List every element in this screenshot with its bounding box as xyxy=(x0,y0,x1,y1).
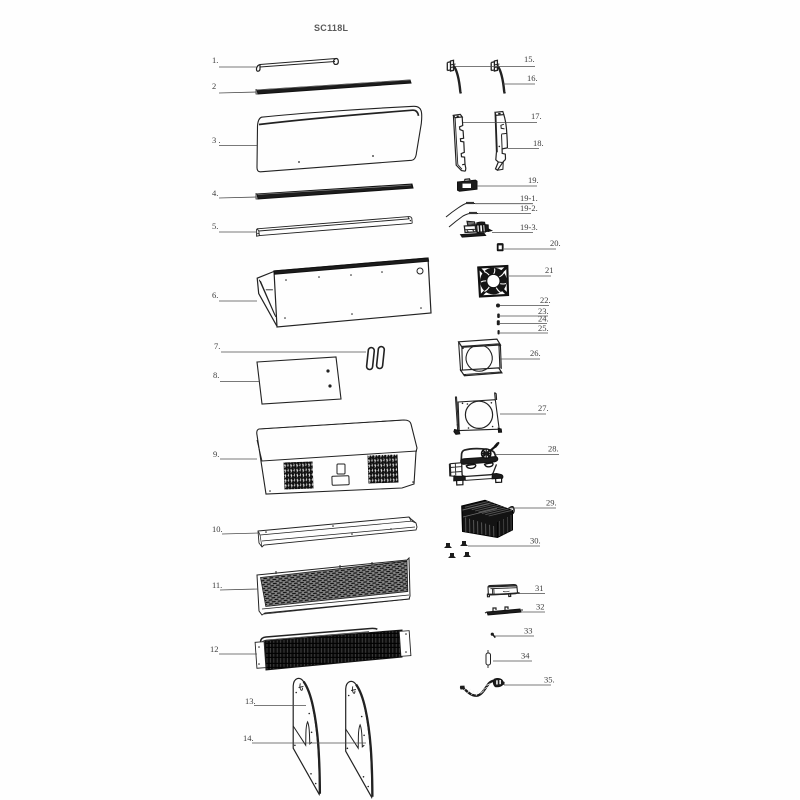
svg-text:18.: 18. xyxy=(533,138,544,148)
svg-text:8.: 8. xyxy=(213,370,219,380)
svg-text:20.: 20. xyxy=(550,238,561,248)
svg-text:6.: 6. xyxy=(212,290,218,300)
svg-text:14.: 14. xyxy=(243,733,254,743)
svg-text:3 .: 3 . xyxy=(212,135,221,145)
svg-text:SC118L: SC118L xyxy=(314,23,349,33)
svg-text:7.: 7. xyxy=(214,341,220,351)
svg-text:10.: 10. xyxy=(212,524,223,534)
svg-text:5.: 5. xyxy=(212,221,218,231)
svg-text:25.: 25. xyxy=(538,323,549,333)
svg-text:19.: 19. xyxy=(528,175,539,185)
svg-text:21: 21 xyxy=(545,265,554,275)
svg-text:12: 12 xyxy=(210,644,219,654)
svg-text:19-2.: 19-2. xyxy=(520,203,538,213)
svg-text:16.: 16. xyxy=(527,73,538,83)
svg-text:22.: 22. xyxy=(540,295,551,305)
svg-text:28.: 28. xyxy=(548,444,559,454)
svg-text:34: 34 xyxy=(521,651,530,661)
svg-text:4.: 4. xyxy=(212,188,218,198)
svg-text:24.: 24. xyxy=(538,314,549,324)
svg-text:35.: 35. xyxy=(544,675,555,685)
svg-text:2: 2 xyxy=(212,81,216,91)
svg-text:31: 31 xyxy=(535,583,544,593)
svg-text:13.: 13. xyxy=(245,696,256,706)
svg-text:9.: 9. xyxy=(213,449,219,459)
svg-text:11.: 11. xyxy=(212,580,222,590)
svg-text:15.: 15. xyxy=(524,54,535,64)
svg-text:27.: 27. xyxy=(538,403,549,413)
svg-text:32: 32 xyxy=(536,602,545,612)
svg-text:19-3.: 19-3. xyxy=(520,222,538,232)
svg-text:26.: 26. xyxy=(530,348,541,358)
svg-text:19-1.: 19-1. xyxy=(520,193,538,203)
svg-text:1.: 1. xyxy=(212,55,218,65)
svg-text:33: 33 xyxy=(524,626,533,636)
svg-text:17.: 17. xyxy=(531,111,542,121)
svg-text:30.: 30. xyxy=(530,536,541,546)
svg-text:29.: 29. xyxy=(546,498,557,508)
